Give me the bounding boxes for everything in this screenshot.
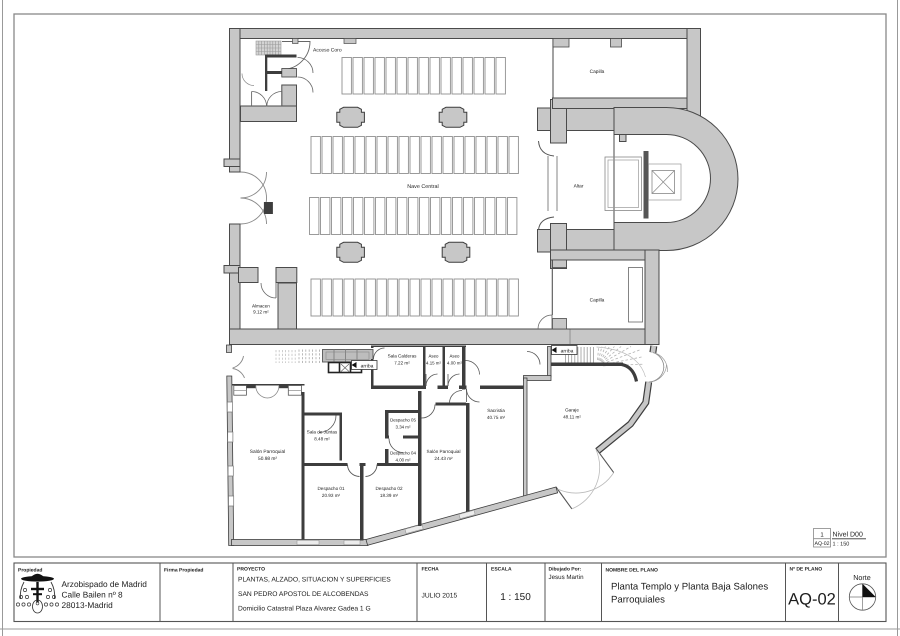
svg-text:1 : 150: 1 : 150 — [833, 542, 850, 548]
svg-text:28013-Madrid: 28013-Madrid — [62, 600, 114, 610]
svg-text:Despacho 05: Despacho 05 — [390, 418, 416, 423]
svg-text:Nivel D00: Nivel D00 — [833, 531, 863, 539]
svg-text:Altar: Altar — [574, 184, 584, 190]
svg-text:Firma Propiedad: Firma Propiedad — [164, 568, 203, 574]
svg-text:arriba: arriba — [561, 348, 574, 354]
svg-text:Salón Parroquial: Salón Parroquial — [250, 449, 285, 455]
svg-text:4.15 m²: 4.15 m² — [426, 361, 441, 366]
svg-text:Aseo: Aseo — [428, 354, 439, 359]
svg-text:AQ-02: AQ-02 — [815, 541, 830, 547]
svg-text:Despacho 02: Despacho 02 — [375, 486, 403, 491]
svg-text:Nave Central: Nave Central — [407, 184, 438, 190]
svg-text:Norte: Norte — [853, 573, 871, 582]
svg-text:48.11 m²: 48.11 m² — [563, 415, 581, 420]
svg-text:8.48 m²: 8.48 m² — [314, 437, 330, 442]
svg-text:Capilla: Capilla — [590, 298, 605, 304]
svg-text:Parroquiales: Parroquiales — [611, 595, 665, 606]
svg-text:arriba: arriba — [361, 363, 374, 369]
svg-text:Jesus Martin: Jesus Martin — [549, 574, 585, 581]
svg-text:Planta Templo y Planta Baja Sa: Planta Templo y Planta Baja Salones — [611, 582, 768, 593]
svg-text:1 : 150: 1 : 150 — [500, 592, 531, 603]
svg-text:Capilla: Capilla — [590, 69, 605, 75]
svg-text:AQ-02: AQ-02 — [788, 591, 836, 609]
svg-text:7.22 m²: 7.22 m² — [394, 361, 410, 366]
svg-text:24.43 m²: 24.43 m² — [434, 456, 453, 461]
svg-text:3.34 m²: 3.34 m² — [396, 425, 411, 430]
svg-text:40.75 m²: 40.75 m² — [487, 415, 506, 420]
svg-text:9.12 m²: 9.12 m² — [253, 310, 269, 315]
svg-text:Garaje: Garaje — [565, 408, 579, 413]
svg-text:Domicilio Catastral Plaza Alva: Domicilio Catastral Plaza Alvarez Gadea … — [238, 606, 371, 613]
svg-text:Aseo: Aseo — [449, 354, 460, 359]
svg-text:Almacen: Almacen — [252, 304, 270, 309]
svg-text:Nº DE PLANO: Nº DE PLANO — [790, 567, 823, 573]
svg-text:Sala Calderas: Sala Calderas — [388, 354, 418, 359]
svg-text:Salón Parroquial: Salón Parroquial — [427, 449, 461, 454]
svg-text:SAN PEDRO APOSTOL DE ALCOBENDA: SAN PEDRO APOSTOL DE ALCOBENDAS — [238, 591, 369, 598]
svg-text:NOMBRE DEL PLANO: NOMBRE DEL PLANO — [606, 568, 659, 574]
svg-text:Acceso Coro: Acceso Coro — [313, 48, 342, 54]
svg-text:4.00 m²: 4.00 m² — [447, 361, 462, 366]
svg-text:Calle Bailen nº 8: Calle Bailen nº 8 — [62, 590, 124, 600]
svg-text:PROYECTO: PROYECTO — [237, 567, 265, 573]
svg-text:18.39 m²: 18.39 m² — [380, 493, 399, 498]
svg-text:Arzobispado de Madrid: Arzobispado de Madrid — [62, 579, 148, 589]
svg-text:Sala de Juntas: Sala de Juntas — [307, 430, 338, 435]
svg-text:Despacho 04: Despacho 04 — [390, 451, 416, 456]
svg-text:JULIO 2015: JULIO 2015 — [422, 593, 458, 600]
svg-text:Sacristia: Sacristia — [487, 408, 505, 413]
svg-text:50.98 m²: 50.98 m² — [258, 456, 277, 462]
svg-text:Dibujado Por:: Dibujado Por: — [549, 567, 582, 573]
svg-text:FECHA: FECHA — [422, 567, 440, 573]
svg-text:PLANTAS, ALZADO, SITUACION Y S: PLANTAS, ALZADO, SITUACION Y SUPERFICIES — [238, 577, 391, 584]
svg-text:Propiedad: Propiedad — [18, 568, 42, 574]
svg-text:ESCALA: ESCALA — [491, 567, 512, 573]
svg-text:20.93 m²: 20.93 m² — [322, 493, 341, 498]
svg-text:Despacho 01: Despacho 01 — [317, 486, 345, 491]
svg-text:4.00 m²: 4.00 m² — [396, 458, 411, 463]
